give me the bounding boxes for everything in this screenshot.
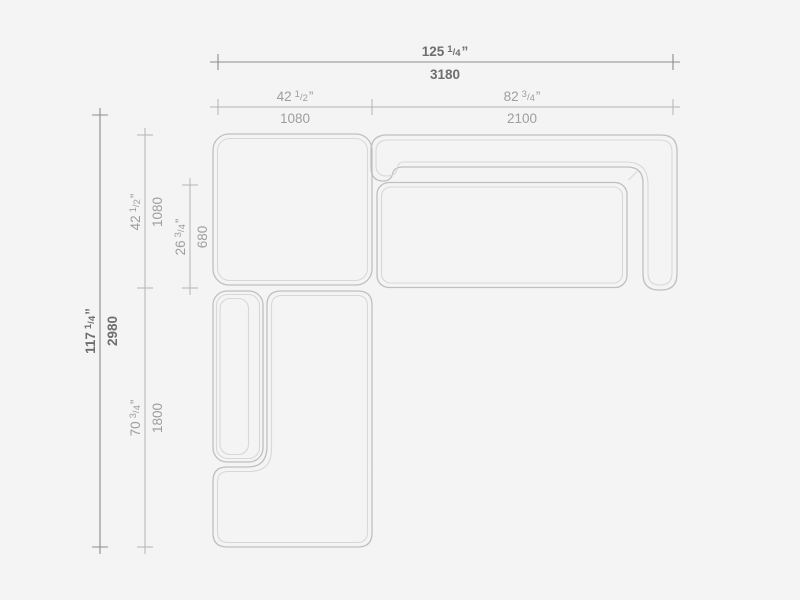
overall-width-inch-label: 1251/4” <box>422 44 469 59</box>
corner-module-outline <box>213 134 372 285</box>
sofa-width-inch-label: 823/4” <box>504 89 541 104</box>
chaise-length-inch-label: 703/4” <box>128 400 143 437</box>
corner-width-mm-label: 1080 <box>280 111 310 126</box>
overall-depth-mm-label: 2980 <box>105 316 120 346</box>
sofa-width-mm-label: 2100 <box>507 111 537 126</box>
sofa-seat-cushion-inner <box>382 187 623 283</box>
armrest-cushion <box>220 299 249 455</box>
chaise-module-inner-outline <box>218 296 368 543</box>
corner-depth-inch-label: 421/2” <box>128 194 143 231</box>
sofa-corner-seam <box>629 170 640 181</box>
corner-module-inner-outline <box>218 139 368 281</box>
corner-width-inch-label: 421/2” <box>277 89 314 104</box>
overall-width-mm-label: 3180 <box>430 67 460 82</box>
sofa-seat-cushion <box>377 183 627 288</box>
sofa-back-arm-outline <box>371 135 677 290</box>
armrest-module-inner-outline <box>217 295 260 459</box>
chaise-module-outline <box>213 291 372 547</box>
overall-depth-inch-label: 1171/4” <box>83 308 98 354</box>
seat-depth-inch-label: 263/4” <box>173 219 188 256</box>
sofa-dimension-drawing: 1251/4” 3180 421/2” 1080 823/4” 2100 117… <box>0 0 800 600</box>
corner-depth-mm-label: 1080 <box>150 197 165 227</box>
seat-depth-mm-label: 680 <box>195 226 210 249</box>
chaise-length-mm-label: 1800 <box>150 403 165 433</box>
